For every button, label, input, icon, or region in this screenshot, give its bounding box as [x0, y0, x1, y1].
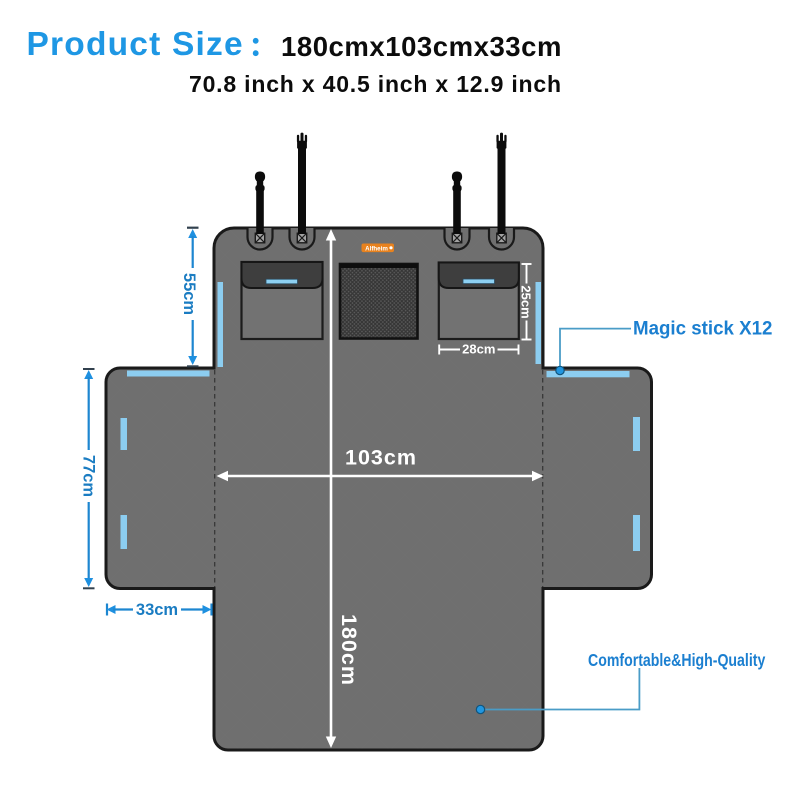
svg-text:103cm: 103cm	[345, 446, 417, 470]
svg-text:180cmx103cmx33cm: 180cmx103cmx33cm	[281, 31, 562, 62]
svg-text:Product Size: Product Size	[27, 26, 244, 63]
svg-text:25cm: 25cm	[519, 285, 534, 318]
svg-text:Alfheim: Alfheim	[365, 245, 388, 252]
svg-text:180cm: 180cm	[337, 614, 361, 686]
svg-text:Comfortable&High-Quality: Comfortable&High-Quality	[588, 650, 765, 670]
svg-text:28cm: 28cm	[462, 342, 495, 357]
svg-text:33cm: 33cm	[136, 601, 178, 619]
svg-text:Magic stick X12: Magic stick X12	[633, 318, 772, 339]
svg-text:55cm: 55cm	[180, 273, 198, 315]
svg-text:77cm: 77cm	[80, 455, 98, 497]
svg-text:70.8 inch x 40.5 inch x 12.9 i: 70.8 inch x 40.5 inch x 12.9 inch	[189, 71, 562, 97]
